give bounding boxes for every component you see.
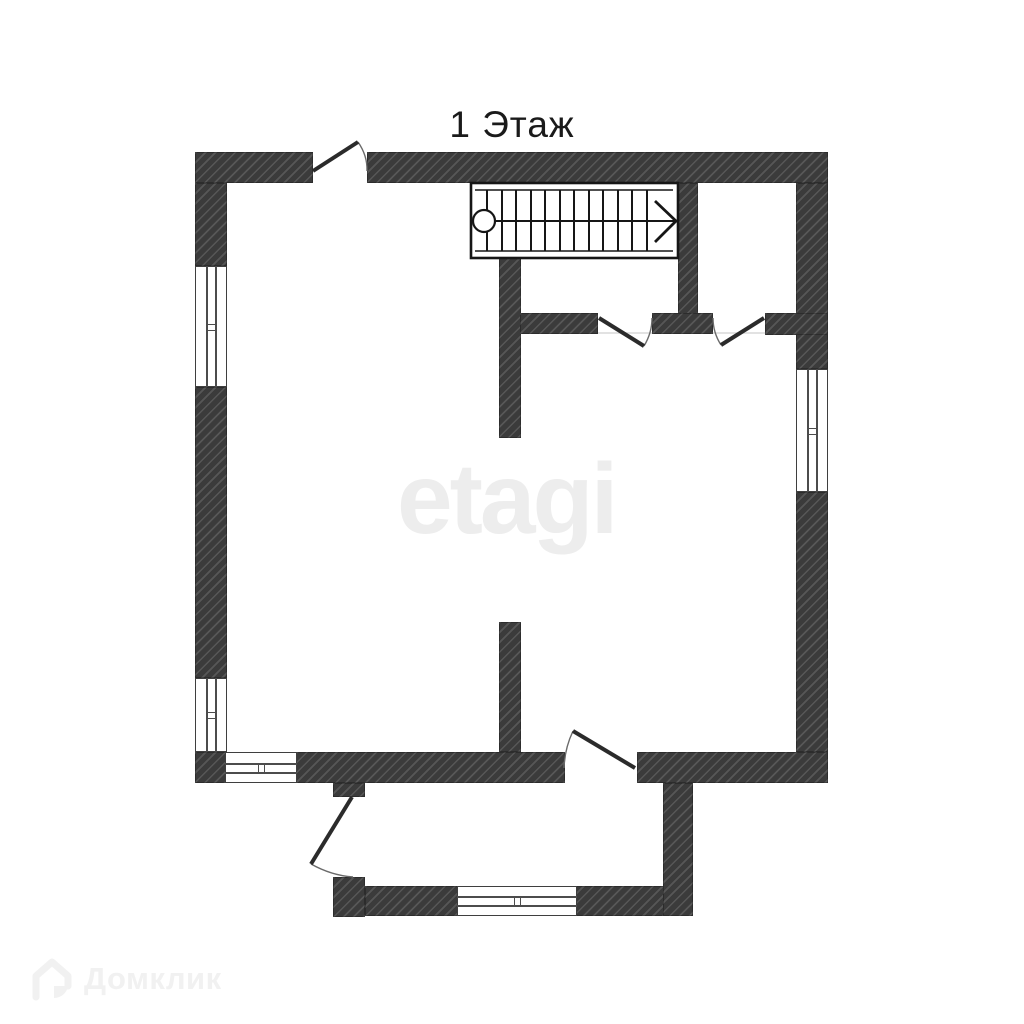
staircase [471, 183, 678, 258]
floor-plan-canvas: etagi 1 Этаж [0, 0, 1024, 1024]
house-icon [30, 956, 74, 1002]
plan-linework [0, 0, 1024, 1024]
door-to-annex [564, 731, 635, 768]
stair-start-circle [473, 210, 495, 232]
door-top-entry [313, 142, 367, 171]
door-closet [713, 318, 764, 345]
domklik-watermark-text: Домклик [84, 961, 222, 997]
domklik-watermark: Домклик [30, 956, 222, 1002]
door-annex-side [311, 797, 353, 877]
door-hall-left [599, 318, 652, 346]
